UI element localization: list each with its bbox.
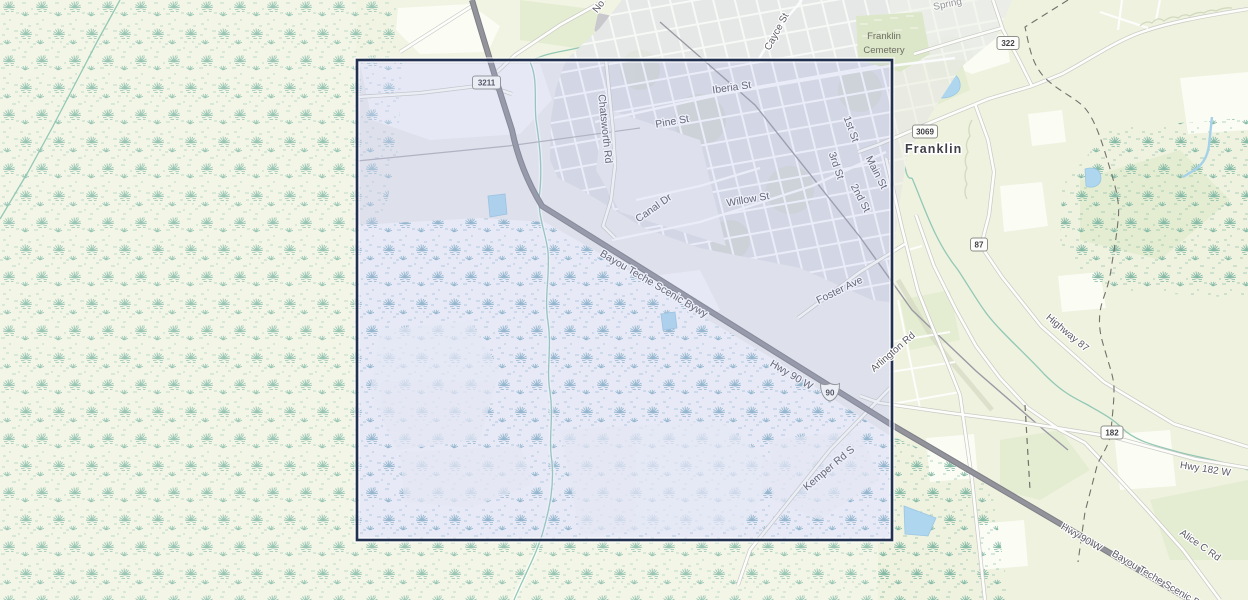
svg-text:87: 87 [975,241,984,250]
svg-text:182: 182 [1105,429,1119,438]
svg-text:322: 322 [1001,39,1015,48]
svg-text:Franklin: Franklin [867,31,901,42]
svg-text:Franklin: Franklin [905,142,962,156]
svg-text:3069: 3069 [916,128,934,137]
svg-text:Cemetery: Cemetery [863,45,904,56]
